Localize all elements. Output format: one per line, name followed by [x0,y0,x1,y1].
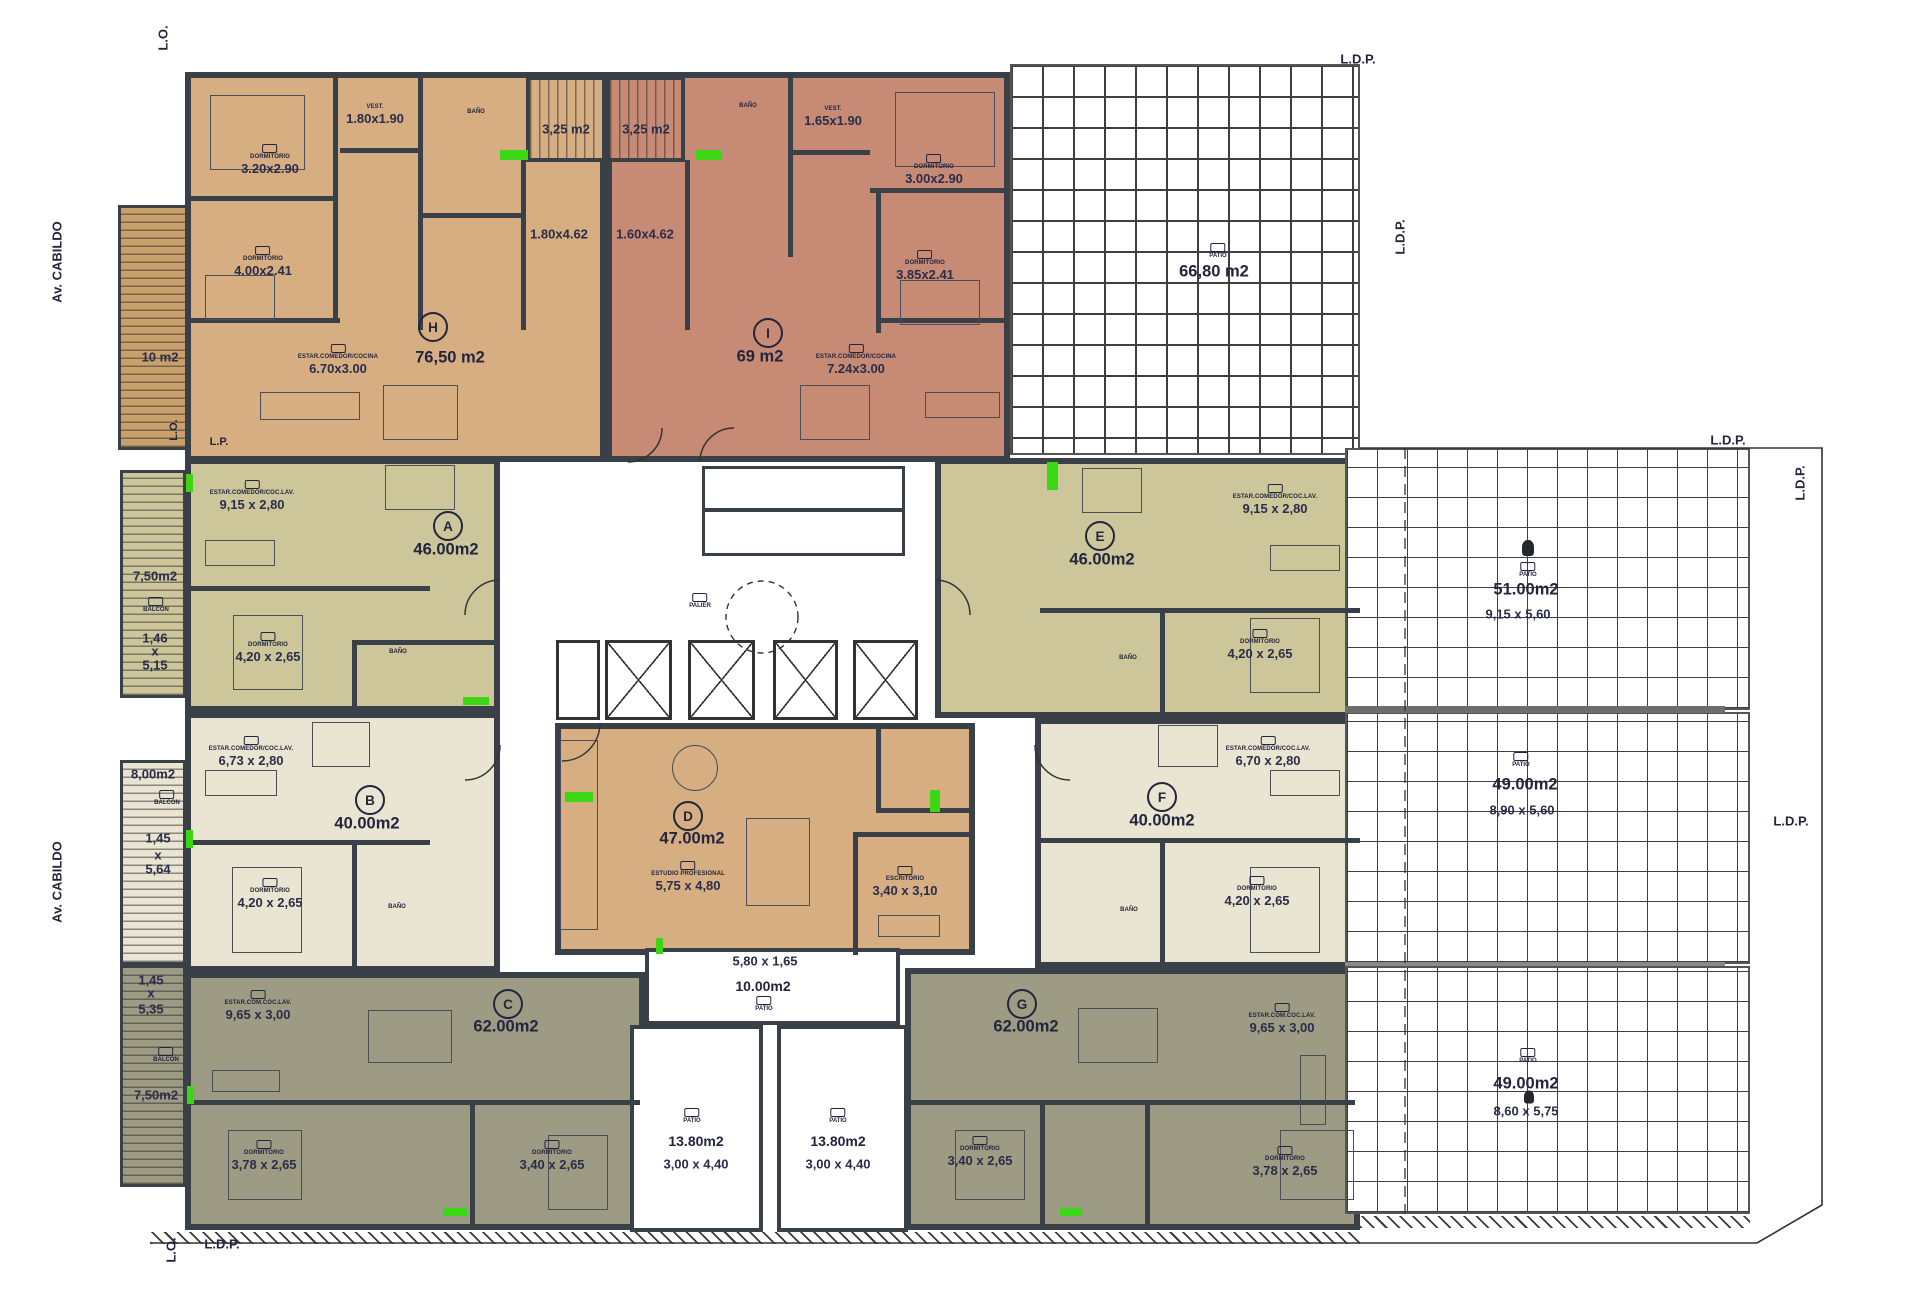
patio-icon [1520,1048,1535,1057]
ldp-label-right-upper: L.D.P. [1393,219,1408,254]
balcony-C-area: 7,50m2 [134,1088,178,1103]
unit-G-area: 62.00m2 [993,1018,1058,1037]
patio-divider-bar-2 [1345,962,1725,966]
balcony-H-10m2 [118,205,188,450]
green-vent-icon [565,792,593,802]
patio-e1-icon: PATIO [1519,562,1536,578]
room-label-D-office: ESCRITORIO 3,40 x 3,10 [872,866,937,898]
wall [1040,608,1360,613]
elevator-3 [773,640,838,720]
living-icon [244,736,259,745]
elevator-4 [853,640,918,720]
sofa [205,540,275,566]
sofa [260,392,360,420]
palier-label: PALIER [689,593,711,609]
elevator-x-icon [608,643,669,717]
lp-label: L.P. [210,436,229,448]
stair-landing-divider [702,508,905,512]
kitchen-counter [560,740,598,930]
unit-C-area: 62.00m2 [473,1018,538,1037]
unit-A-badge: A [433,511,463,541]
room-label-A-dorm: DORMITORIO 4,20 x 2,65 [235,632,300,664]
sidewalk-hatch [150,1232,1360,1244]
dining-table [368,1010,452,1063]
room-label-B-living: ESTAR.COMEDOR/COC.LAV. 6,73 x 2,80 [209,736,293,768]
room-label-B-dorm: DORMITORIO 4,20 x 2,65 [237,878,302,910]
dining-table [385,465,455,510]
green-vent-icon [443,1208,467,1216]
machine-room [556,640,600,720]
unit-I-badge: I [753,318,783,348]
wall [352,640,500,645]
patio-10-icon: PATIO [755,996,772,1012]
room-label-I-living: ESTAR.COMEDOR/COCINA 7.24x3.00 [816,344,896,376]
ldp-label-top: L.D.P. [1340,52,1375,67]
floor-plan: Av. CABILDO Av. CABILDO L.O. L.O. L.O. L… [0,0,1920,1308]
sidewalk-hatch-right [1360,1216,1750,1228]
unit-B-area: 40.00m2 [334,815,399,834]
patio-e-49a [1345,712,1750,964]
room-label-E-living: ESTAR.COMEDOR/COC.LAV. 9,15 x 2,80 [1233,484,1317,516]
sofa [1270,545,1340,571]
wall [190,196,336,201]
unit-A-area: 46.00m2 [413,541,478,560]
desk-icon [898,866,913,875]
wall [340,148,421,153]
bed-icon [263,144,278,153]
dining-table [1082,468,1142,513]
patio-e1-area: 51.00m2 [1493,581,1558,600]
patio-13L-dim: 3,00 x 4,40 [663,1157,728,1172]
balcony-B-w: 1,45 [145,831,170,846]
desk [900,280,980,325]
unit-H-badge: H [418,312,448,342]
bed-icon [927,154,942,163]
balcony-C-l: 5,35 [138,1002,163,1017]
ldp-label-mid-right: L.D.P. [1773,814,1808,829]
patio-13L-area: 13.80m2 [668,1133,723,1149]
bath-label-H: BAÑO [467,109,485,115]
desk [878,915,940,937]
patio-e3-icon: PATIO [1519,1048,1536,1064]
unit-E-area: 46.00m2 [1069,551,1134,570]
unit-I-area: 69 m2 [737,348,784,367]
room-label-E-dorm: DORMITORIO 4,20 x 2,65 [1227,629,1292,661]
patio-divider-bar [1345,706,1725,713]
room-label-C-living: ESTAR.COM.COC.LAV. 9,65 x 3,00 [225,990,292,1022]
green-vent-icon [186,474,193,492]
sofa [1270,770,1340,796]
wall [470,1105,475,1230]
patio-ne-area: 66,80 m2 [1179,263,1249,282]
wall [853,832,975,837]
unit-E-badge: E [1085,521,1115,551]
wall [190,586,430,591]
room-label-C-dorm2: DORMITORIO 3,40 x 2,65 [519,1140,584,1172]
balcony-B-icon: BALCON [154,790,180,806]
bed-icon [257,1140,272,1149]
unit-G-badge: G [1007,989,1037,1019]
wall [870,188,1005,193]
unit-C-badge: C [493,989,523,1019]
room-label-H-vest: VEST. 1.80x1.90 [346,104,404,126]
round-table [672,745,718,791]
patio-e1-dim: 9,15 x 5,60 [1485,607,1550,622]
dining-table [383,385,458,440]
room-label-I-dorm1: DORMITORIO 3.00x2.90 [905,154,963,186]
bath-label-E: BAÑO [1119,655,1137,661]
balcony-icon [148,597,163,606]
ldp-label-step-v: L.D.P. [1793,465,1808,500]
street-label-upper: Av. CABILDO [50,221,65,303]
patio-3-25-right-label: 3,25 m2 [622,122,670,137]
wall [1160,840,1165,968]
wall [521,160,526,330]
patio-ne-66-80 [1010,64,1360,455]
patio-3-25-left-label: 3,25 m2 [542,122,590,137]
wall [876,808,975,813]
balcony-B-x: x [154,848,161,863]
patio-e2-icon: PATIO [1512,752,1529,768]
dining-table [1158,725,1218,767]
wall [190,840,430,845]
room-label-H-kitchen: 1.80x4.62 [530,227,588,242]
bed-icon [263,878,278,887]
patio-10-dim: 5,80 x 1,65 [732,954,797,969]
dining-table [1078,1008,1158,1063]
patio-e3-area: 49.00m2 [1493,1075,1558,1094]
unit-B-badge: B [355,785,385,815]
unit-F-badge: F [1147,782,1177,812]
wall [788,77,793,257]
room-label-G-dorm2: DORMITORIO 3,78 x 2,65 [1252,1146,1317,1178]
wall [1040,838,1360,843]
sofa [1300,1055,1326,1125]
elevator-x-icon [691,643,752,717]
green-vent-icon [186,830,193,848]
room-label-D-studio: ESTUDIO PROFESIONAL 5,75 x 4,80 [651,861,725,893]
living-icon [245,480,260,489]
room-label-C-dorm1: DORMITORIO 3,78 x 2,65 [231,1140,296,1172]
unit-H-area: 76,50 m2 [415,349,485,368]
green-vent-icon [1060,1208,1082,1216]
patio-ne-icon: PATIO [1209,243,1226,259]
patio-icon [756,996,771,1005]
elevator-x-icon [776,643,835,717]
bed-icon [1253,629,1268,638]
bed-icon [261,632,276,641]
green-vent-icon [930,790,940,812]
green-vent-icon [656,938,663,954]
living-icon [1268,484,1283,493]
room-label-I-kitchen: 1.60x4.62 [616,227,674,242]
room-label-H-dorm2: DORMITORIO 4.00x2.41 [234,246,292,278]
wall [876,188,881,333]
sofa [925,392,1000,418]
room-label-H-dorm1: DORMITORIO 3.20x2.90 [241,144,299,176]
balcony-icon [158,1047,173,1056]
wall [685,160,690,330]
bed-icon [1250,876,1265,885]
green-vent-icon [1047,462,1058,490]
green-vent-icon [463,697,489,705]
elevator-x-icon [856,643,915,717]
unit-D-area: 47.00m2 [659,830,724,849]
lo-label-top: L.O. [156,25,171,50]
balcony-A-l: 5,15 [142,658,167,673]
wall [352,643,357,712]
unit-D-badge: D [673,801,703,831]
room-label-I-vest: VEST. 1.65x1.90 [804,106,862,128]
green-vent-icon [187,1086,194,1104]
balcony-A-icon: BALCON [143,597,169,613]
wall [1040,1105,1045,1230]
patio-e2-area: 49.00m2 [1492,776,1557,795]
patio-13L-icon: PATIO [683,1108,700,1124]
sofa [205,770,277,796]
bed-icon [1278,1146,1293,1155]
patio-icon [1513,752,1528,761]
patio-13R-icon: PATIO [829,1108,846,1124]
ldp-label-step-h: L.D.P. [1710,433,1745,448]
wall [790,150,870,155]
room-label-G-living: ESTAR.COM.COC.LAV. 9,65 x 3,00 [1249,1003,1316,1035]
patio-icon [1210,243,1225,252]
bed-icon [973,1136,988,1145]
bath-label-A: BAÑO [389,649,407,655]
bath-label-F: BAÑO [1120,907,1138,913]
living-icon [250,990,265,999]
patio-13-80-right [777,1025,908,1232]
desk [205,275,275,320]
wall [853,832,858,955]
balcony-H-area: 10 m2 [142,350,179,365]
living-icon [1261,736,1276,745]
unit-F-area: 40.00m2 [1129,812,1194,831]
patio-icon [684,1108,699,1117]
patio-13R-area: 13.80m2 [810,1133,865,1149]
room-label-G-dorm1: DORMITORIO 3,40 x 2,65 [947,1136,1012,1168]
balcony-C-x: x [147,986,154,1001]
living-icon [848,344,863,353]
bath-label-B: BAÑO [388,904,406,910]
sofa [746,818,810,906]
room-label-A-living: ESTAR.COMEDOR/COC.LAV. 9,15 x 2,80 [210,480,294,512]
plant-icon [1522,540,1534,556]
ldp-label-bottom: L.D.P. [204,1237,239,1252]
patio-10-area: 10.00m2 [735,978,790,994]
balcony-A-area: 7,50m2 [133,569,177,584]
dining-table [312,722,370,767]
wall [1145,1105,1150,1230]
living-icon [330,344,345,353]
green-vent-icon [500,150,528,160]
room-label-F-dorm: DORMITORIO 4,20 x 2,65 [1224,876,1289,908]
room-label-I-dorm2: DORMITORIO 3.85x2.41 [896,250,954,282]
wall [418,77,423,330]
bed-icon [256,246,271,255]
wall [1160,610,1165,718]
patio-3-25-right [606,76,685,162]
patio-e3-dim: 8,60 x 5,75 [1493,1104,1558,1119]
living-icon [1274,1003,1289,1012]
bed-icon [918,250,933,259]
room-label-H-living: ESTAR.COMEDOR/COCINA 6.70x3.00 [298,344,378,376]
bed-icon [545,1140,560,1149]
elevator-2 [688,640,755,720]
lo-label-mid: L.O. [168,419,180,440]
green-vent-icon [696,150,722,160]
balcony-icon [159,790,174,799]
patio-e-51 [1345,448,1750,710]
wall [190,1100,640,1105]
sofa [212,1070,280,1092]
bath-label-I: BAÑO [739,103,757,109]
balcony-C-icon: BALCON [153,1047,179,1063]
patio-e2-dim: 8,90 x 5,60 [1489,803,1554,818]
elevator-1 [605,640,672,720]
patio-13-80-left [630,1025,763,1232]
lo-label-bottom: L.O. [164,1237,179,1262]
wall [352,843,357,968]
room-label-F-living: ESTAR.COMEDOR/COC.LAV. 6,70 x 2,80 [1226,736,1310,768]
street-label-lower: Av. CABILDO [50,841,65,923]
wall [910,1100,1355,1105]
wall [876,723,881,813]
dining-table [800,385,870,440]
patio-3-25-left [526,76,606,162]
balcony-B-l: 5,64 [145,862,170,877]
wall [420,213,523,218]
patio-icon [1520,562,1535,571]
palier-icon [693,593,708,602]
studio-icon [680,861,695,870]
balcony-B-area: 8,00m2 [131,767,175,782]
balcony-A-x: x [151,644,158,659]
patio-icon [830,1108,845,1117]
patio-13R-dim: 3,00 x 4,40 [805,1157,870,1172]
